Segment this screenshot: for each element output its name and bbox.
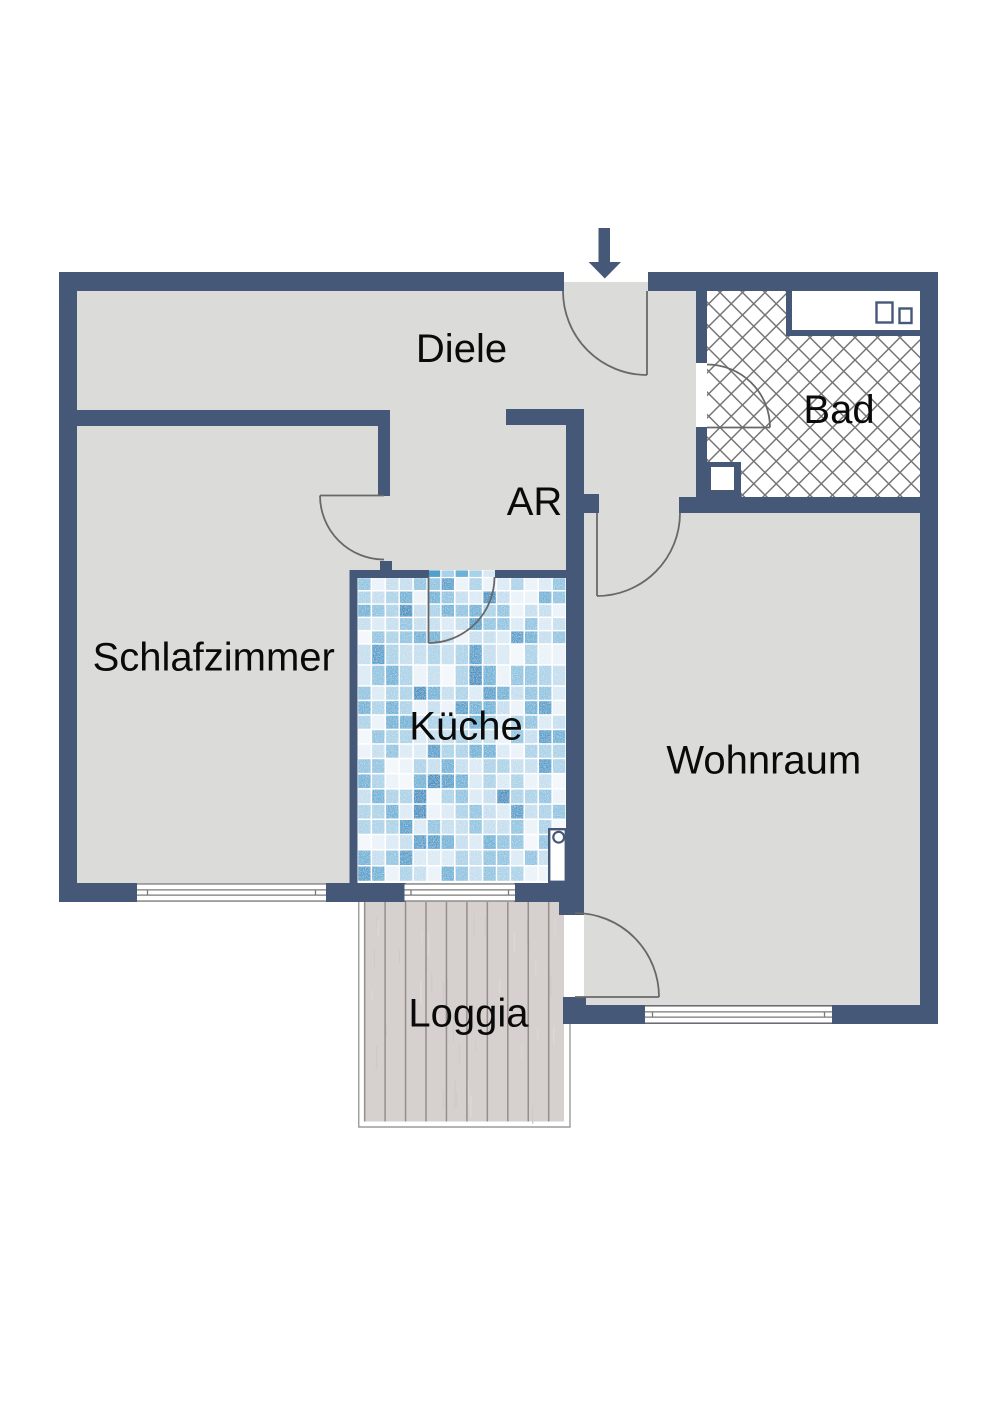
svg-text:Wohnraum: Wohnraum [666,738,861,782]
svg-text:Diele: Diele [416,327,507,371]
svg-text:AR: AR [507,480,563,524]
svg-text:Bad: Bad [803,388,874,432]
svg-text:Küche: Küche [409,704,522,748]
svg-text:Schlafzimmer: Schlafzimmer [93,636,335,680]
svg-text:Loggia: Loggia [408,991,529,1035]
